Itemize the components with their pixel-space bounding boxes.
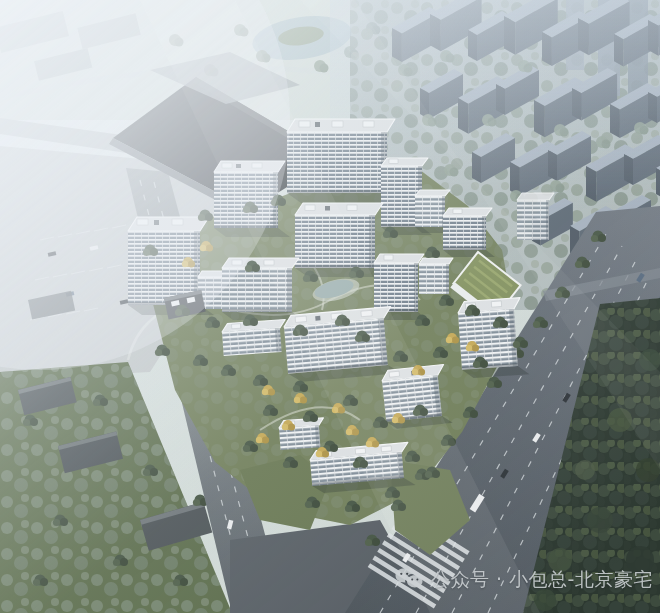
watermark: 公众号 · 小包总-北京豪宅 — [394, 567, 653, 593]
scene-svg — [0, 0, 660, 613]
haze-overlays — [0, 0, 660, 613]
watermark-text: 公众号 · 小包总-北京豪宅 — [431, 567, 653, 593]
aerial-render: 公众号 · 小包总-北京豪宅 — [0, 0, 660, 613]
wechat-icon — [394, 567, 424, 593]
